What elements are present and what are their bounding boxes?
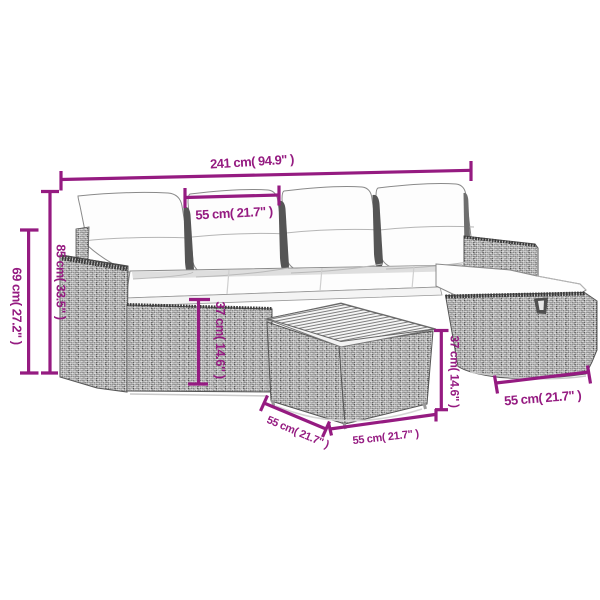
svg-text:55 cm( 21.7" ): 55 cm( 21.7" ) [352, 428, 420, 447]
svg-text:241 cm( 94.9" ): 241 cm( 94.9" ) [210, 151, 295, 171]
svg-text:69 cm( 27.2" ): 69 cm( 27.2" ) [10, 267, 25, 344]
svg-text:37 cm( 14.6" ): 37 cm( 14.6" ) [448, 335, 462, 408]
svg-text:85 cm( 33.5" ): 85 cm( 33.5" ) [54, 244, 68, 320]
svg-text:55 cm( 21.7" ): 55 cm( 21.7" ) [265, 414, 331, 451]
svg-text:55 cm( 21.7" ): 55 cm( 21.7" ) [504, 387, 582, 408]
svg-text:37 cm( 14.6" ): 37 cm( 14.6" ) [213, 301, 228, 378]
